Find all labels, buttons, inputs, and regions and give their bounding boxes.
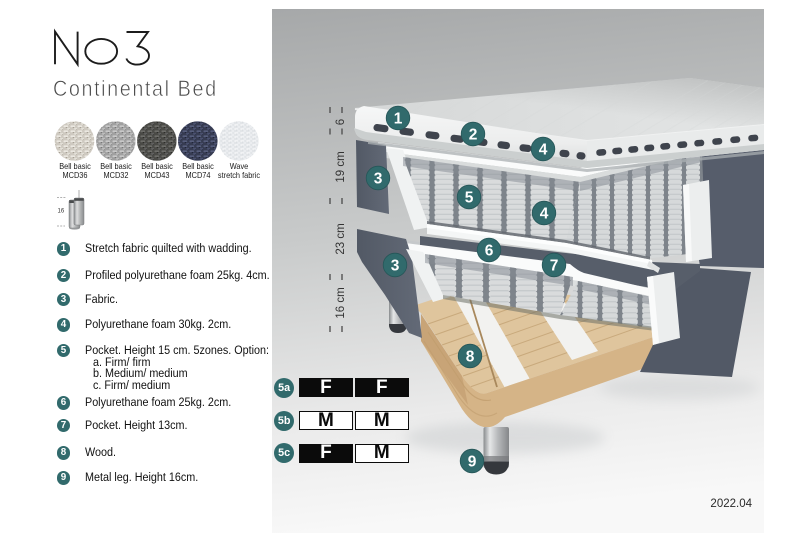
svg-text:4: 4 (540, 206, 549, 223)
svg-text:23 cm: 23 cm (335, 223, 347, 254)
svg-text:3: 3 (391, 258, 400, 275)
svg-text:6: 6 (335, 119, 347, 125)
svg-text:4: 4 (539, 142, 548, 159)
svg-text:8: 8 (466, 349, 475, 366)
svg-text:2022.04: 2022.04 (710, 498, 752, 510)
svg-text:16 cm: 16 cm (335, 287, 347, 318)
svg-text:16: 16 (58, 209, 65, 215)
svg-text:7: 7 (550, 258, 559, 275)
svg-text:9: 9 (468, 454, 477, 471)
svg-text:3: 3 (374, 171, 383, 188)
svg-text:1: 1 (394, 111, 403, 128)
svg-text:5: 5 (465, 190, 474, 207)
svg-text:6: 6 (485, 243, 494, 260)
svg-text:19 cm: 19 cm (335, 151, 347, 182)
svg-text:2: 2 (469, 127, 478, 144)
